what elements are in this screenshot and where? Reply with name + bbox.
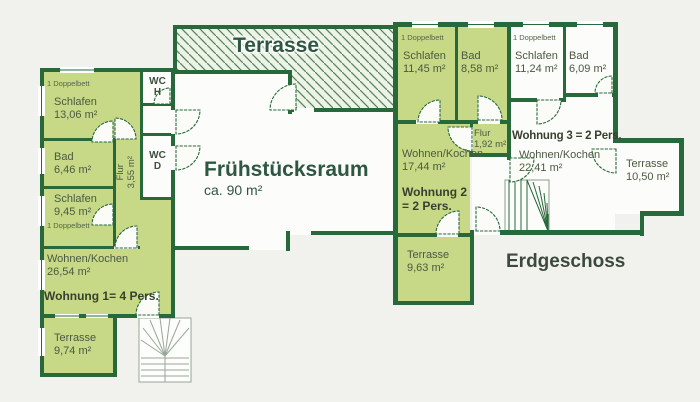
apt1-living-label: Wohnen/Kochen 26,54 m² bbox=[47, 253, 128, 279]
apt1-bedroom1-label: Schlafen 13,06 m² bbox=[54, 96, 97, 122]
apt2-terrace-label: Terrasse 9,63 m² bbox=[407, 249, 449, 275]
breakfast-room-title: Frühstücksraum ca. 90 m² bbox=[204, 158, 369, 198]
staircase-right-icon bbox=[505, 180, 549, 232]
main-terrace-title: Terrasse bbox=[233, 34, 319, 58]
apt3-bedroom-note: 1 Doppelbett bbox=[513, 33, 556, 42]
apt1-label: Wohnung 1= 4 Pers. bbox=[44, 290, 159, 304]
floor-plan: 1 Doppelbett Schlafen 13,06 m² Bad 6,46 … bbox=[0, 0, 700, 402]
floor-title: Erdgeschoss bbox=[506, 251, 625, 273]
apt1-bedroom2-note: 1 Doppelbett bbox=[47, 221, 90, 230]
apt2-living-label: Wohnen/Kochen 17,44 m² bbox=[402, 148, 456, 174]
apt3-living-label: Wohnen/Kochen 22,41 m² bbox=[519, 149, 573, 175]
apt2-bath-label: Bad 8,58 m² bbox=[461, 50, 498, 76]
apt1-terrace-label: Terrasse 9,74 m² bbox=[54, 332, 96, 358]
apt2-bedroom-note: 1 Doppelbett bbox=[401, 33, 444, 42]
wc-d-label: WC D bbox=[142, 150, 173, 172]
apt2-bedroom-label: Schlafen 11,45 m² bbox=[403, 50, 446, 76]
apt1-bedroom2-label: Schlafen 9,45 m² bbox=[54, 193, 97, 219]
apt3-bath-label: Bad 6,09 m² bbox=[569, 50, 606, 76]
staircase-left-icon bbox=[139, 318, 191, 382]
apt1-bedroom1-note: 1 Doppelbett bbox=[47, 79, 90, 88]
apt2-label: Wohnung 2 = 2 Pers. bbox=[402, 186, 470, 214]
apt3-terrace-label: Terrasse 10,50 m² bbox=[626, 158, 669, 184]
apt3-label: Wohnung 3 = 2 Pers. bbox=[512, 130, 621, 143]
apt1-bath-label: Bad 6,46 m² bbox=[54, 151, 91, 177]
apt3-bedroom-label: Schlafen 11,24 m² bbox=[515, 50, 558, 76]
wc-h-label: WC H bbox=[142, 76, 173, 98]
